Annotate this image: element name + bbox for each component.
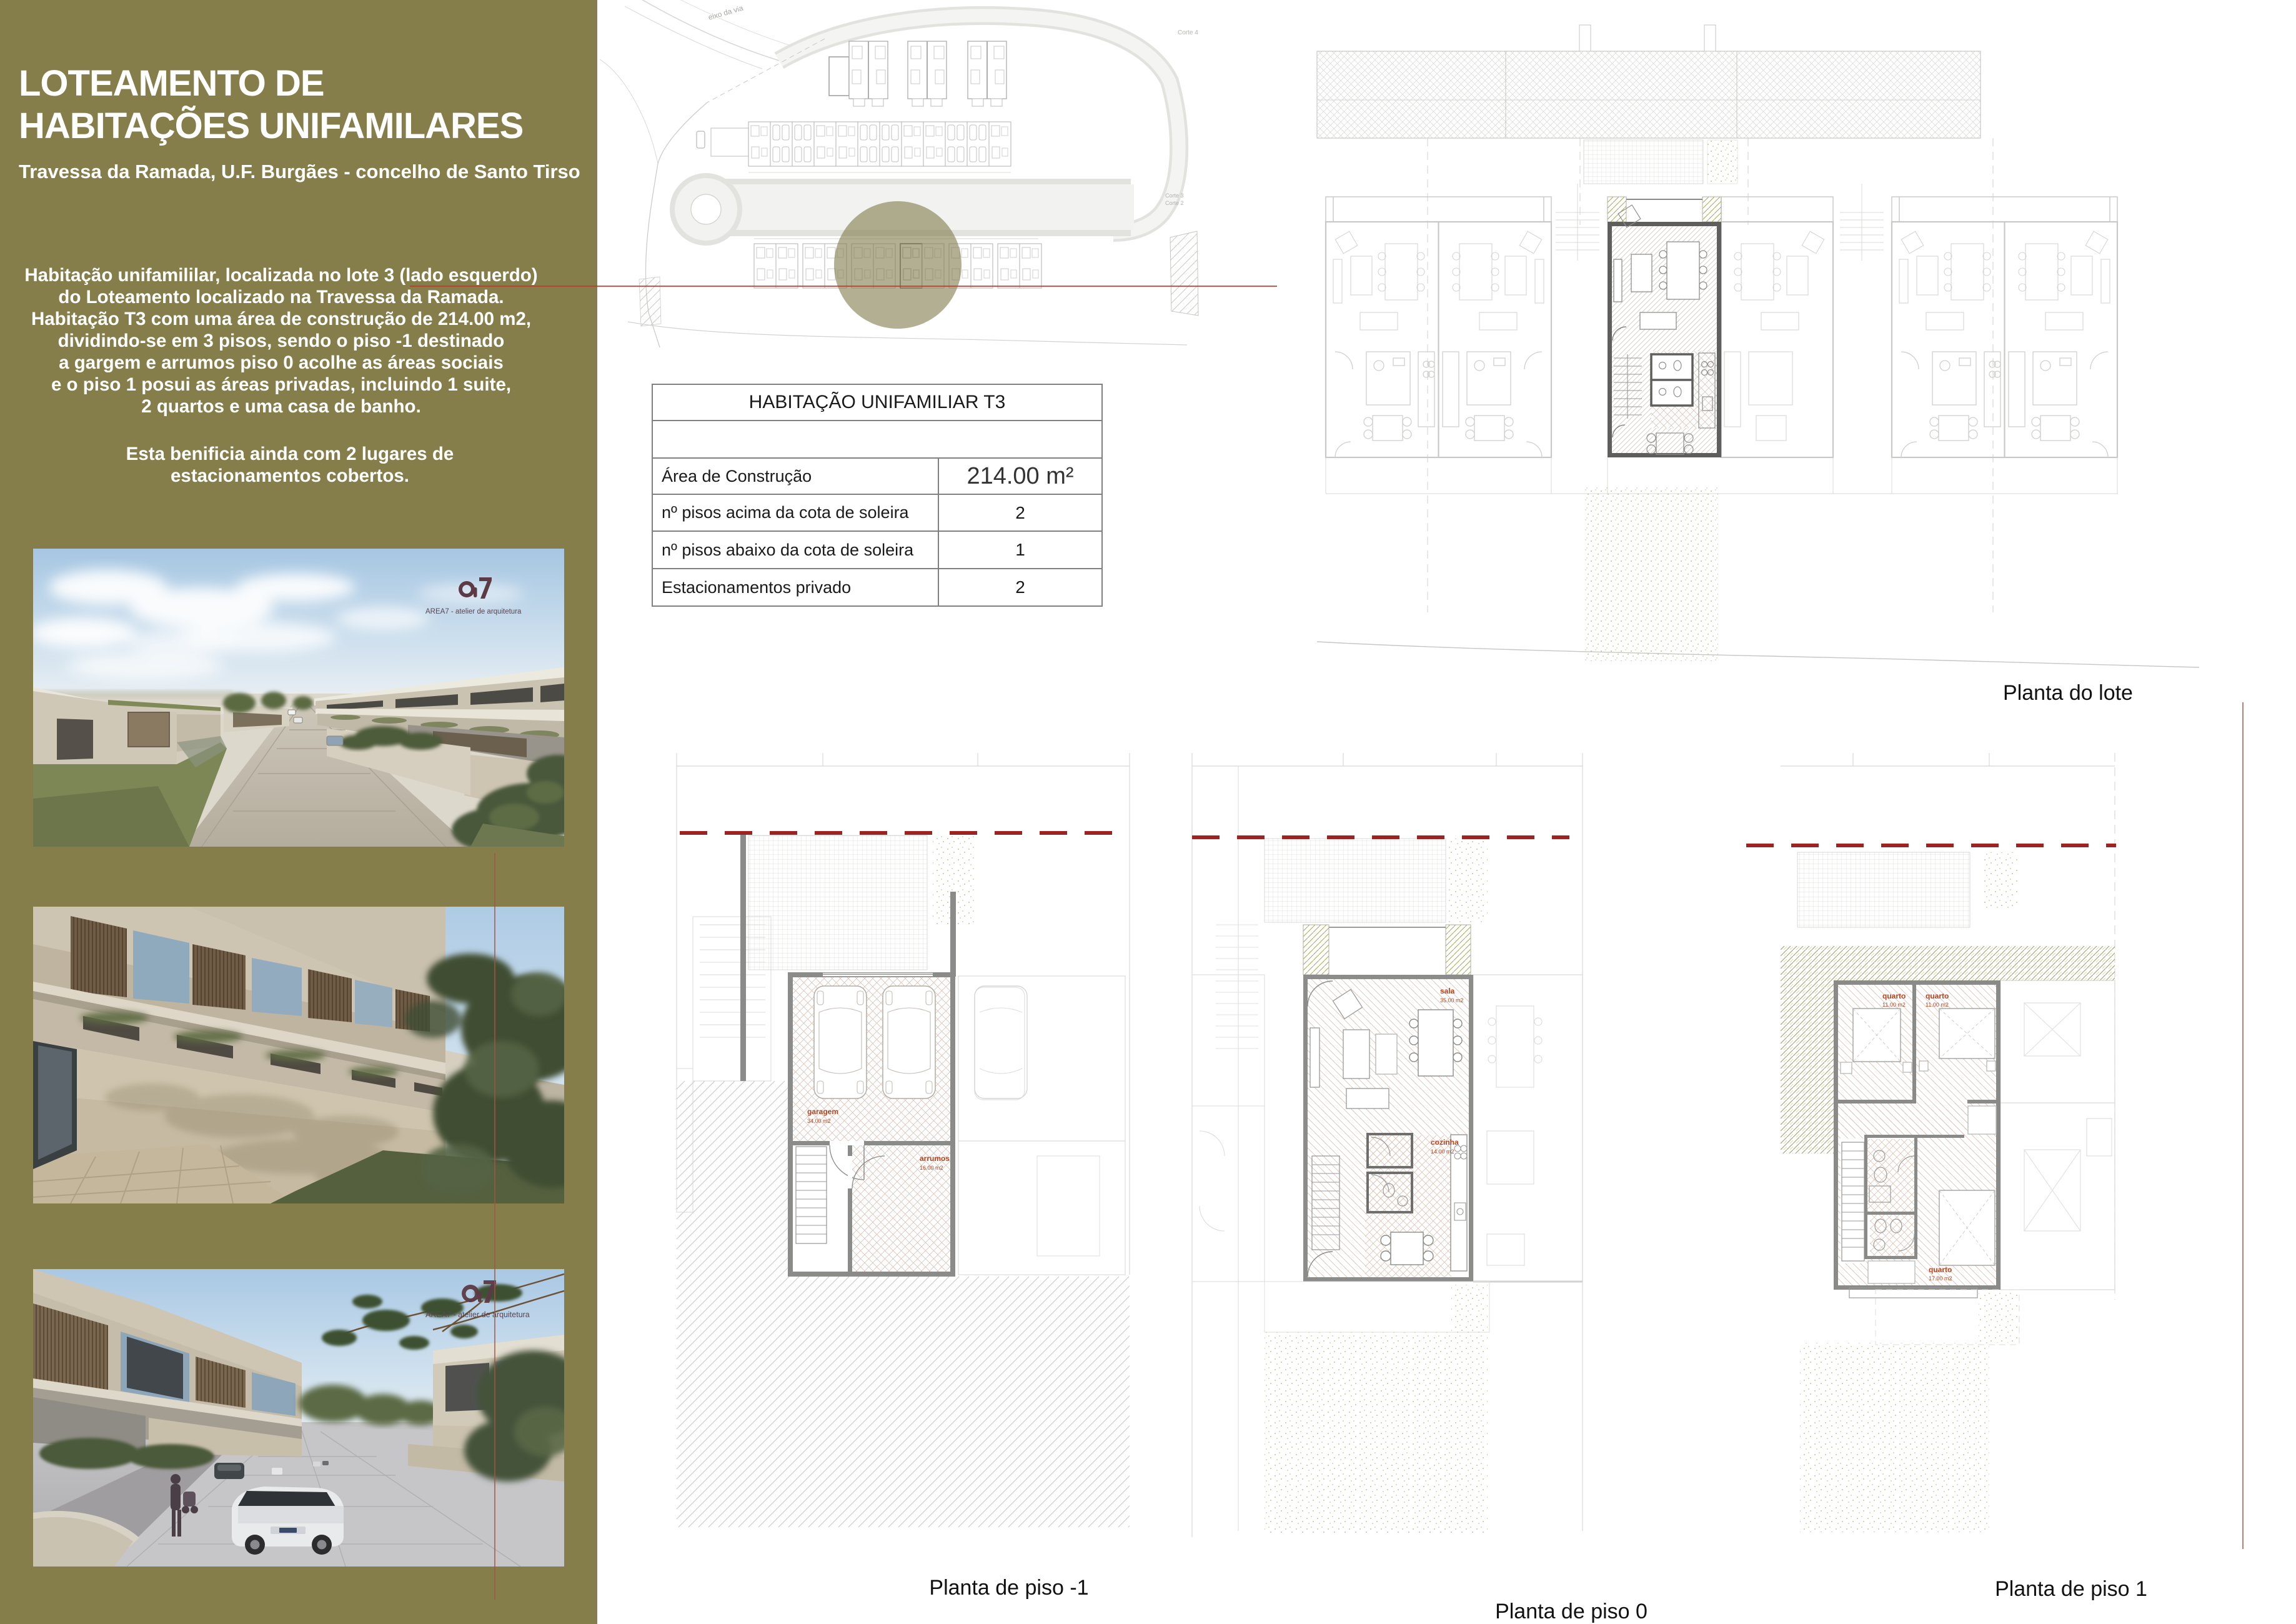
svg-text:Corte 2: Corte 2 — [1165, 200, 1184, 206]
svg-text:11.00 m2: 11.00 m2 — [1926, 1002, 1949, 1008]
svg-text:cozinha: cozinha — [1431, 1138, 1459, 1147]
svg-text:35.00 m2: 35.00 m2 — [1440, 997, 1464, 1004]
svg-text:sala: sala — [1440, 987, 1455, 995]
svg-text:Corte 3: Corte 3 — [1165, 192, 1184, 199]
svg-text:11.00 m2: 11.00 m2 — [1882, 1002, 1906, 1008]
svg-text:Corte 4: Corte 4 — [1178, 29, 1198, 36]
svg-text:AREA7 - atelier de arquitetura: AREA7 - atelier de arquitetura — [425, 608, 522, 615]
svg-text:quarto: quarto — [1926, 992, 1949, 1000]
svg-text:AREA7 - atelier de arquitetura: AREA7 - atelier de arquitetura — [425, 1310, 530, 1319]
svg-text:garagem: garagem — [807, 1107, 838, 1116]
svg-text:quarto: quarto — [1882, 992, 1906, 1000]
svg-text:arrumos: arrumos — [920, 1154, 950, 1163]
svg-text:eixo da via: eixo da via — [707, 4, 744, 22]
svg-text:34.00 m2: 34.00 m2 — [807, 1118, 831, 1124]
svg-text:17.00 m2: 17.00 m2 — [1929, 1275, 1952, 1282]
svg-text:14.00 m2: 14.00 m2 — [1431, 1148, 1454, 1155]
svg-text:16.00 m2: 16.00 m2 — [920, 1165, 943, 1171]
svg-text:quarto: quarto — [1929, 1265, 1952, 1274]
